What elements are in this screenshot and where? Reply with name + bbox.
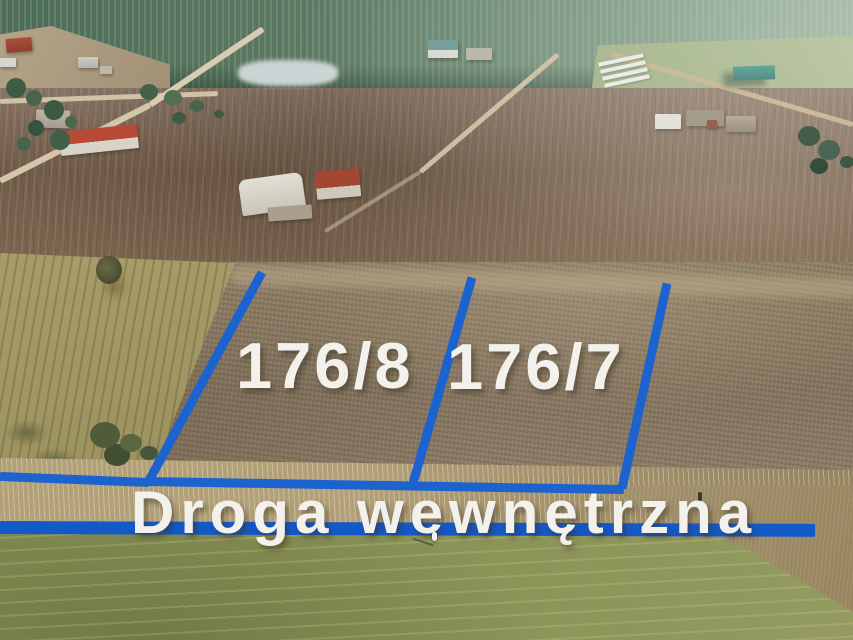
farm-building bbox=[466, 48, 492, 60]
farm-building bbox=[0, 58, 16, 67]
farm-building bbox=[707, 120, 717, 128]
red-roof-house bbox=[315, 168, 361, 200]
farm-building bbox=[655, 114, 681, 129]
bush-cluster bbox=[90, 422, 120, 448]
plot-label-176-8: 176/8 bbox=[236, 333, 414, 398]
tree-cluster bbox=[140, 84, 158, 100]
farm-building bbox=[100, 66, 112, 74]
bale-stack bbox=[733, 65, 775, 80]
tree-cluster bbox=[798, 126, 820, 146]
person-figure bbox=[432, 532, 437, 541]
farm-building bbox=[428, 40, 458, 58]
farm-building bbox=[5, 37, 32, 53]
farm-building bbox=[36, 109, 71, 128]
lone-tree bbox=[96, 256, 122, 284]
farm-building bbox=[686, 110, 724, 126]
farm-building bbox=[726, 116, 756, 132]
distant-figure bbox=[698, 492, 702, 501]
tree-cluster bbox=[6, 78, 26, 98]
farm-building bbox=[78, 57, 98, 68]
road-label: Droga wewnętrzna bbox=[131, 483, 757, 543]
white-ground-patch bbox=[238, 60, 338, 86]
plot-label-176-7: 176/7 bbox=[447, 334, 625, 399]
aerial-photo-land-offer: 176/8 176/7 Droga wewnętrzna bbox=[0, 0, 853, 640]
